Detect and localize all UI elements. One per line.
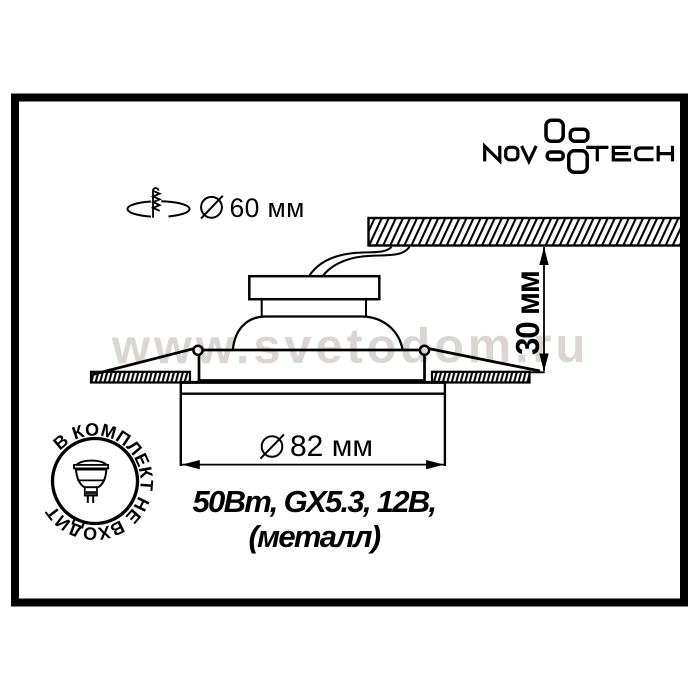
svg-text:50Вт, GX5.3, 12В,: 50Вт, GX5.3, 12В, (193, 484, 436, 519)
svg-text:82 мм: 82 мм (290, 430, 373, 463)
svg-text:www.svetodom.ru: www.svetodom.ru (111, 319, 589, 375)
svg-text:(металл): (металл) (249, 519, 381, 554)
svg-text:60 мм: 60 мм (230, 193, 305, 223)
